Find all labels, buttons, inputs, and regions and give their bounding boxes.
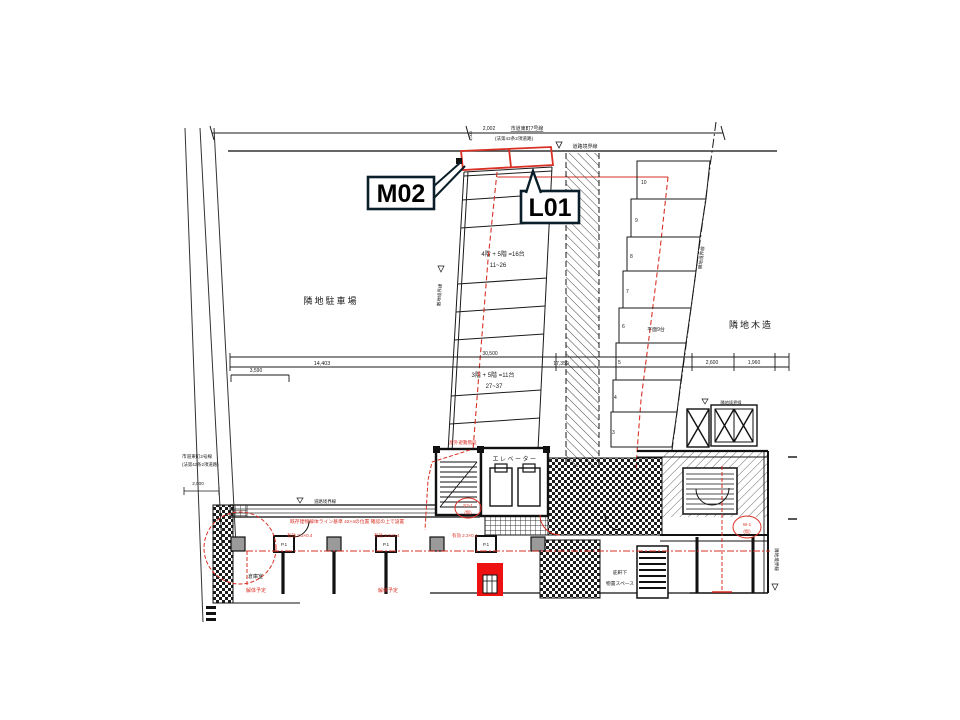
top-road-sub: (法第42条2項道路): [495, 135, 534, 142]
bottom-walls: [213, 551, 690, 603]
road-boundary-label-top: 道路境界線: [572, 143, 597, 150]
storage-label: 倉庫室: [248, 573, 263, 580]
red-kari-note: (仮): [464, 509, 472, 516]
flat-parking-steps: [611, 161, 710, 447]
red-dim-note: 有効 2.3×0.4: [374, 532, 400, 539]
l01-pointer: [526, 171, 541, 193]
top-road-name: 市道東町7号線: [511, 125, 544, 132]
boundary-marker-icon: [772, 584, 778, 590]
dim-3590: 3,590: [250, 368, 263, 374]
column-label: P.1: [281, 542, 288, 547]
red-demolish-note: 解体予定: [246, 587, 266, 594]
x-brace-pit: [687, 405, 757, 447]
road-boundary-label-bottom: 道路境界線: [314, 498, 337, 505]
stair-red-note: 屋外避難階段: [449, 439, 477, 446]
step-number: 7: [626, 289, 629, 295]
left-road-dim-line: [184, 487, 219, 495]
stair-core: [436, 449, 481, 515]
step-number: 10: [641, 180, 647, 186]
red-dim-note: 有効 2.3×0.4: [287, 532, 313, 539]
eaves-label-2: 物置スペース: [606, 580, 634, 587]
area-label-right: 隣地木造: [729, 319, 773, 330]
misc-bottom-left-marks: [206, 606, 216, 621]
walkway-dark: [548, 458, 662, 535]
paving-strip-left: [213, 505, 233, 603]
dim-17350: 17,350: [553, 361, 569, 367]
left-road-dim: 2,000: [192, 481, 204, 486]
tower-note-a1: 4階 + 5階 =16台: [481, 250, 524, 258]
fire-box: [477, 563, 503, 596]
site-plan-drawing: 2,002 市道東町7号線 (法第42条2項道路) 4,000 道路境界線 市道…: [0, 0, 960, 720]
elevator-label: エレベーター: [492, 455, 537, 463]
red-kari-note: (仮): [743, 528, 751, 535]
boundary-marker-icon: [702, 399, 708, 404]
boundary-marker-icon: [438, 266, 444, 272]
short-dimension-bracket: [231, 375, 289, 382]
neighbor-boundary-label-bottomright: 隣地境界線: [773, 548, 780, 571]
boundary-marker-icon: [556, 142, 562, 148]
eaves-label-1: 庇軒下: [613, 569, 628, 576]
red-w1-note: W-1: [743, 522, 752, 527]
top-road-dim: 2,002: [483, 126, 496, 132]
m02-tag-label: M02: [377, 180, 426, 208]
stair-bottom-right: [637, 546, 668, 598]
step-number: 3: [612, 430, 615, 436]
step-number: 4: [614, 395, 617, 401]
column-label: P.1: [383, 542, 390, 547]
road-width-dim: 4,000: [468, 130, 473, 141]
step-number: 5: [618, 360, 621, 366]
tower-note-b1: 3階 + 5階 =11台: [472, 371, 515, 379]
boundary-marker-icon: [297, 498, 303, 503]
column-label: P.1: [483, 542, 490, 547]
tower-note-b2: 27~37: [486, 384, 504, 390]
red-w2-note: S2-1: [463, 503, 473, 508]
tower-note-a2: 11~26: [490, 263, 507, 269]
l01-tag-label: L01: [528, 194, 571, 222]
m02-leader: [434, 162, 465, 198]
red-demolish-note: 解体予定: [378, 587, 398, 594]
red-dim-note: 有効 2.3×0.4: [452, 532, 478, 539]
flat-parking-count: 平面9台: [647, 326, 665, 333]
dim-14403: 14,403: [314, 361, 331, 367]
left-road-sub: (法第42条2項道路): [182, 461, 219, 468]
neighbor-boundary-label-top: 隣地境界線: [721, 399, 743, 406]
area-label-left: 隣地駐車場: [303, 295, 358, 306]
dim-30500: 30,500: [482, 351, 498, 357]
dim-2600: 2,600: [706, 360, 719, 366]
step-number: 9: [635, 218, 638, 224]
red-note-long: 既存建物解体ライン基準 42×4の位置 確認の上で設置: [290, 518, 404, 525]
dim-1960: 1,960: [748, 360, 761, 366]
site-boundary-label: 敷地境界線: [435, 283, 444, 306]
step-number: 6: [622, 324, 625, 330]
left-road-name: 市道東町2号線: [182, 453, 213, 460]
right-edge-ticks: [788, 457, 797, 519]
paving-bottom-mid: [540, 540, 600, 598]
step-number: 8: [630, 254, 633, 260]
site-plan-page: { "annotations": { "m02": "M02", "l01": …: [0, 0, 960, 720]
